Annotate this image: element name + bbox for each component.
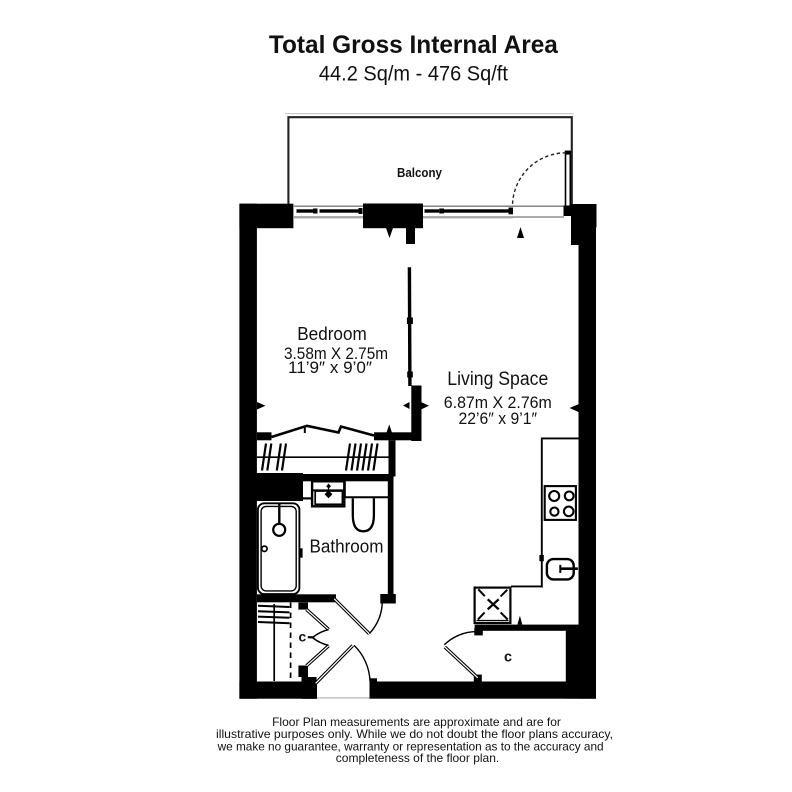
svg-text:Bedroom: Bedroom [297, 323, 367, 344]
svg-text:Living Space: Living Space [447, 369, 548, 390]
svg-text:Balcony: Balcony [397, 166, 442, 180]
svg-text:completeness of the floor plan: completeness of the floor plan. [336, 751, 499, 765]
svg-text:Bathroom: Bathroom [310, 537, 384, 557]
svg-text:c: c [504, 650, 512, 666]
svg-text:44.2 Sq/m - 476 Sq/ft: 44.2 Sq/m - 476 Sq/ft [319, 63, 508, 86]
svg-text:11’9″ x 9’0″: 11’9″ x 9’0″ [288, 358, 372, 377]
svg-text:22’6″ x 9’1″: 22’6″ x 9’1″ [459, 409, 538, 428]
svg-text:Total Gross Internal Area: Total Gross Internal Area [269, 31, 559, 59]
svg-text:c: c [298, 630, 306, 645]
